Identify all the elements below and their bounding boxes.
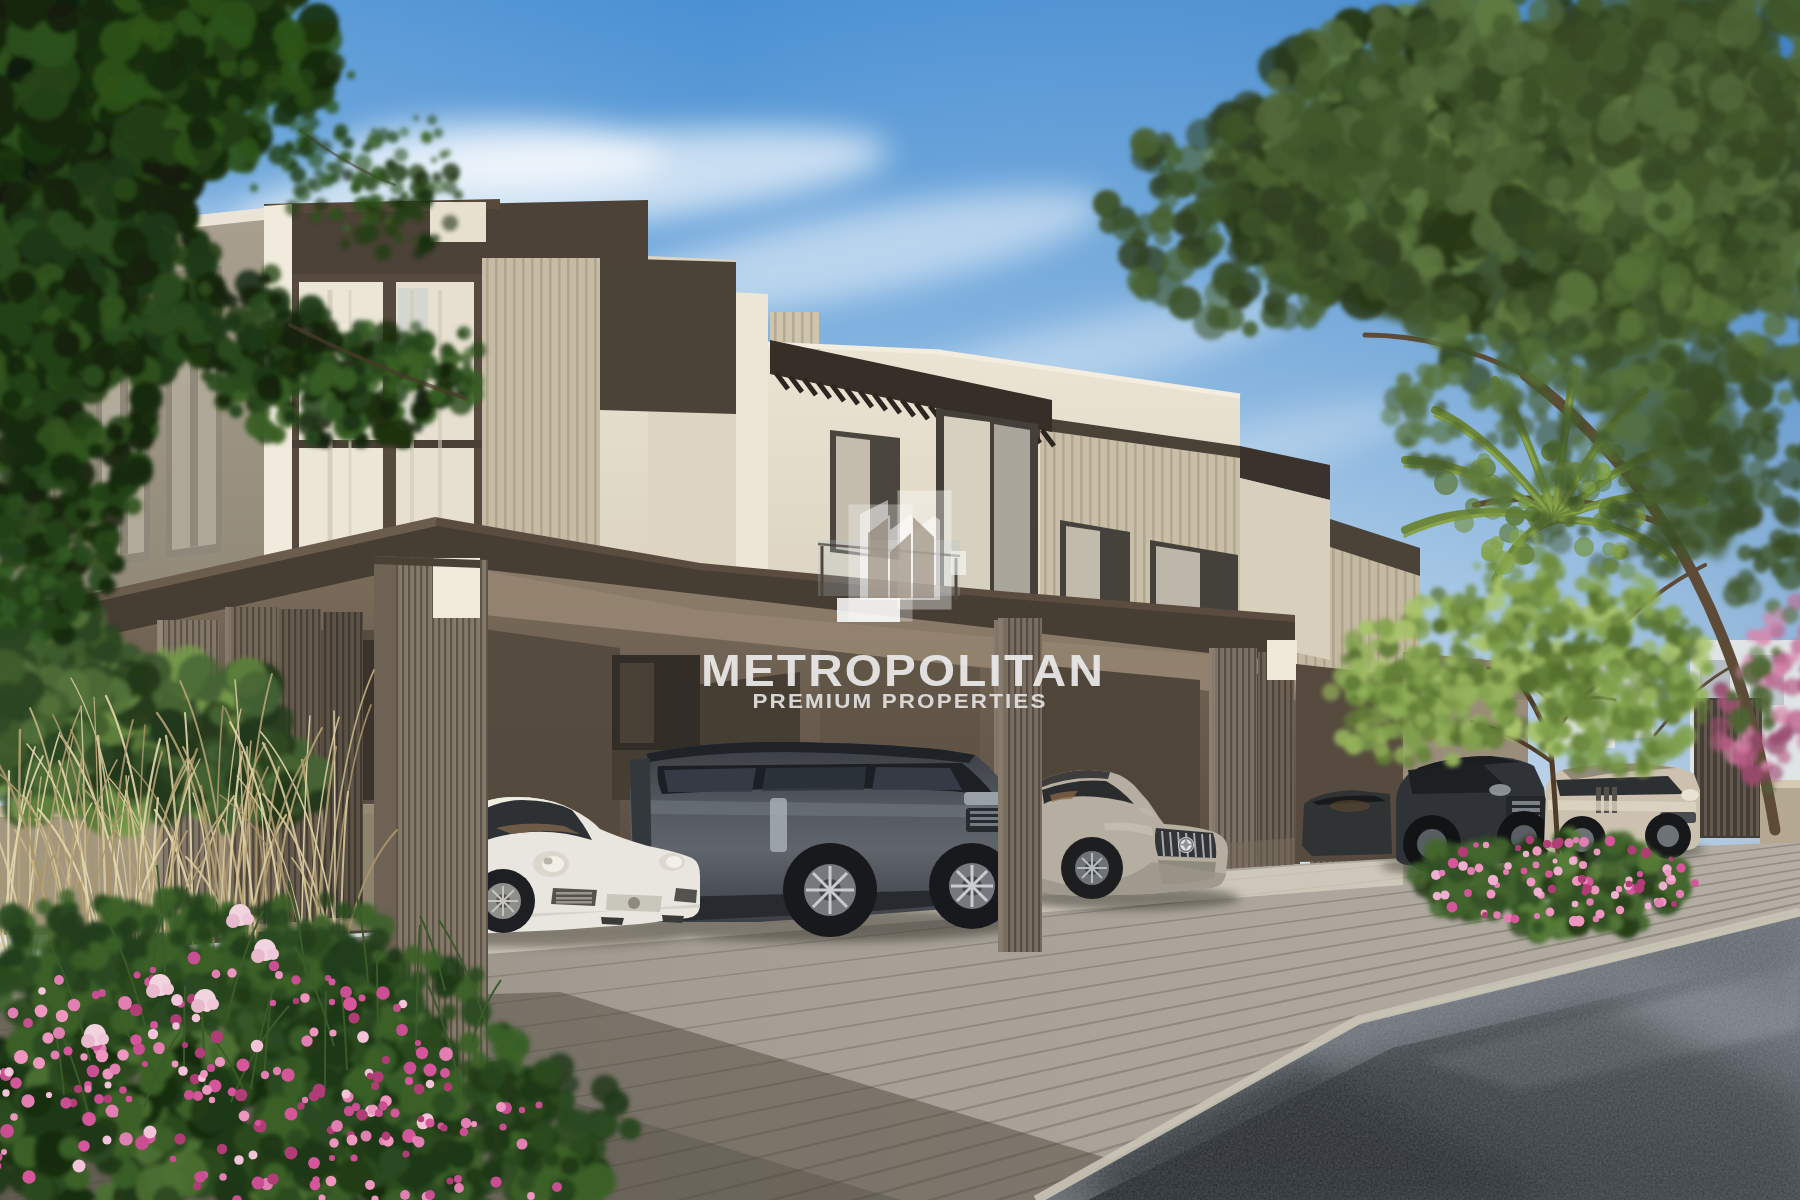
- svg-text:METROPOLITAN: METROPOLITAN: [701, 646, 1105, 695]
- svg-text:PREMIUM PROPERTIES: PREMIUM PROPERTIES: [753, 689, 1048, 712]
